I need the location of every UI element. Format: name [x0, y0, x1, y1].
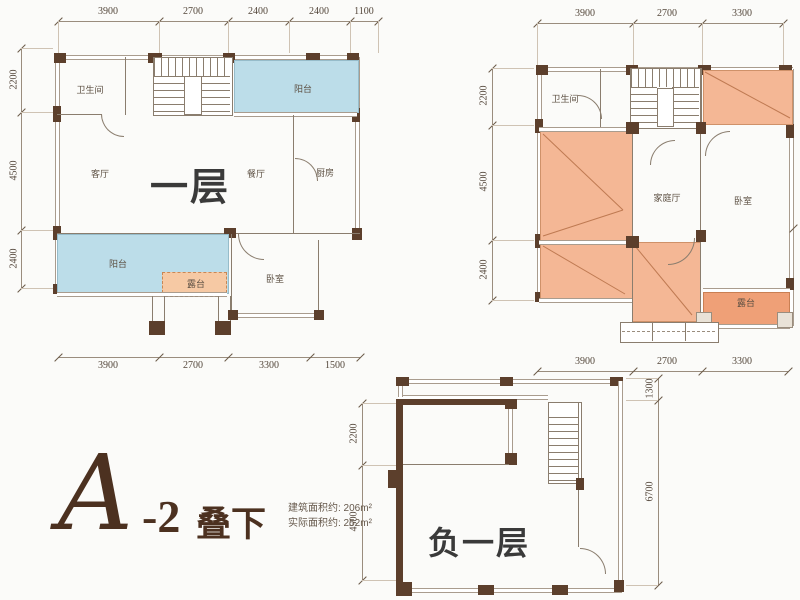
unit-series-letter: A — [58, 432, 133, 554]
dim-label: 4500 — [9, 157, 20, 185]
extension-line — [362, 403, 396, 404]
wall-pier — [54, 53, 66, 63]
dimension-line — [58, 357, 360, 358]
wall-pier — [352, 228, 362, 240]
extension-line — [21, 112, 53, 113]
room-label-balcony-bottom: 阳台 — [98, 257, 138, 270]
dim-label: 2700 — [173, 360, 213, 371]
room-label-balcony-top: 阳台 — [283, 82, 323, 95]
room-label-family: 家庭厅 — [645, 191, 689, 204]
extension-line — [492, 240, 534, 241]
extension-line — [537, 23, 538, 65]
room-label-bathroom: 卫生间 — [70, 83, 110, 96]
unit-type-label: 叠下 — [196, 496, 266, 547]
wall-pier — [626, 122, 639, 134]
door-arc — [238, 234, 264, 260]
dim-label: 2200 — [9, 66, 20, 94]
dim-label: 6700 — [645, 478, 656, 506]
extension-line — [783, 23, 784, 65]
dimension-line — [58, 21, 378, 22]
interior-wall — [164, 296, 165, 322]
interior-wall — [578, 402, 579, 547]
door-arc — [580, 548, 606, 574]
extension-line — [702, 23, 703, 65]
interior-wall — [231, 234, 232, 316]
wall-pier — [228, 310, 238, 320]
hatch-divider — [652, 323, 653, 341]
interior-wall — [293, 115, 294, 233]
extension-line — [159, 21, 160, 53]
wall-pier — [552, 585, 568, 595]
area-built: 建筑面积约: 206m² — [288, 499, 372, 514]
dim-label: 2400 — [299, 6, 339, 17]
dashed-line — [165, 296, 218, 297]
dim-label: 3300 — [249, 360, 289, 371]
exterior-wall — [398, 399, 514, 405]
extension-line — [21, 48, 53, 49]
extension-line — [492, 125, 534, 126]
dim-label: 3300 — [722, 8, 762, 19]
stair-treads — [200, 76, 230, 113]
dimension-line — [537, 23, 783, 24]
wall-pier — [396, 582, 412, 596]
extension-line — [58, 21, 59, 53]
room-label-living: 客厅 — [80, 167, 120, 180]
window-wall — [236, 313, 316, 318]
interior-wall — [632, 127, 633, 322]
exterior-wall — [618, 381, 623, 590]
dim-label: 2200 — [479, 82, 490, 110]
dashed-line — [622, 331, 715, 332]
extension-line — [350, 21, 351, 53]
dim-label: 3900 — [565, 356, 605, 367]
wall-pier — [505, 399, 517, 409]
floorplan-sheet: 3900 2700 2400 2400 1100 2200 4500 2400 … — [0, 0, 800, 600]
dim-label: 3900 — [88, 360, 128, 371]
stair-treads — [549, 417, 579, 481]
extension-line — [362, 465, 396, 466]
wall-pier — [696, 122, 706, 134]
room-label-terrace-2f: 露台 — [726, 296, 766, 309]
dim-label: 2400 — [238, 6, 278, 17]
wall-pier — [388, 470, 397, 488]
dim-label: 2400 — [479, 256, 490, 284]
interior-wall — [539, 127, 632, 132]
room-label-bedroom: 卧室 — [255, 272, 295, 285]
interior-wall — [125, 57, 126, 115]
exterior-wall — [396, 399, 403, 594]
dim-label: 2200 — [349, 420, 360, 448]
wall-pier — [215, 321, 231, 335]
wall-pier — [696, 230, 706, 242]
extension-line — [21, 288, 53, 289]
interior-wall — [539, 298, 632, 303]
hatch-divider — [685, 323, 686, 341]
dim-label: 2700 — [647, 8, 687, 19]
wall-pier — [314, 310, 324, 320]
wall-pier — [478, 585, 494, 595]
floor-label-first: 一层 — [150, 156, 230, 211]
interior-wall — [152, 296, 153, 322]
stair-treads — [154, 76, 184, 113]
extension-line — [362, 580, 396, 581]
extension-line — [492, 68, 534, 69]
room-label-terrace: 露台 — [176, 277, 216, 290]
dimension-line — [537, 371, 788, 372]
dim-label: 2700 — [647, 356, 687, 367]
terrace-pier — [777, 312, 793, 328]
dim-label: 3300 — [722, 356, 762, 367]
area-actual: 实际面积约: 252m² — [288, 514, 372, 529]
wall-pier — [396, 377, 409, 386]
extension-line — [633, 23, 634, 65]
dim-label: 2700 — [173, 6, 213, 17]
dim-label: 3900 — [88, 6, 128, 17]
room-label-dining: 餐厅 — [236, 167, 276, 180]
room-label-kitchen: 厨房 — [305, 166, 345, 179]
floor-label-basement: 负一层 — [428, 518, 530, 564]
extension-line — [228, 21, 229, 53]
dim-label: 1300 — [645, 375, 656, 403]
hatched-strip — [620, 322, 719, 343]
extension-line — [378, 21, 379, 53]
extension-line — [492, 300, 534, 301]
exterior-wall — [398, 588, 622, 593]
wall-pier — [626, 236, 639, 248]
dimension-line — [362, 403, 363, 580]
dim-label: 2400 — [9, 245, 20, 273]
interior-wall — [218, 296, 219, 322]
dim-label: 1500 — [315, 360, 355, 371]
door-arc — [101, 114, 124, 137]
interior-wall — [539, 240, 632, 245]
wall-pier — [576, 478, 584, 490]
wall-pier — [149, 321, 165, 335]
stair-landing — [184, 76, 202, 115]
extension-line — [21, 230, 53, 231]
interior-wall — [57, 114, 102, 115]
interior-wall — [403, 464, 509, 465]
dim-label: 3900 — [565, 8, 605, 19]
stair-treads — [154, 58, 230, 76]
room-label-bedroom-2f: 卧室 — [723, 194, 763, 207]
dim-label: 1100 — [344, 6, 384, 17]
extension-line — [289, 21, 290, 53]
dim-label: 4500 — [479, 168, 490, 196]
interior-wall — [700, 69, 701, 324]
unit-series-suffix: -2 — [142, 490, 180, 543]
interior-wall — [318, 240, 319, 316]
extension-line — [626, 585, 658, 586]
wall-pier — [500, 377, 513, 386]
interior-wall — [234, 112, 357, 117]
dimension-line — [21, 48, 22, 288]
dimension-line — [492, 68, 493, 300]
dimension-line — [658, 378, 659, 585]
wall-pier — [614, 580, 624, 592]
